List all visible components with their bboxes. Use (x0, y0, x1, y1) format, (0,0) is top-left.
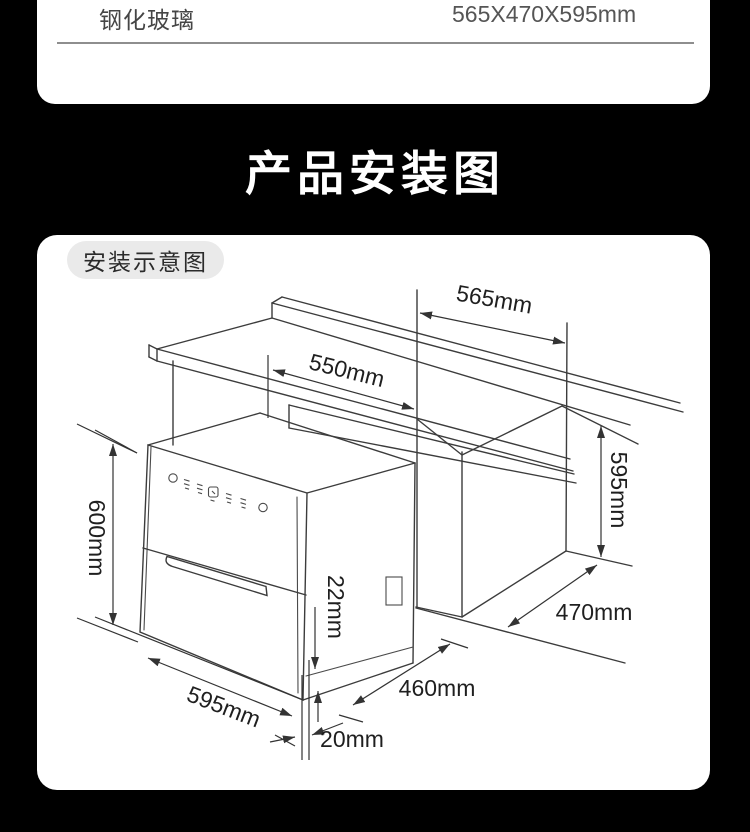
display-tick (211, 491, 216, 501)
dim-counter-width: 565mm (454, 280, 534, 319)
page: { "spec_row": { "material": "钢化玻璃", "siz… (0, 0, 750, 832)
dim-appliance-depth: 460mm (399, 675, 476, 701)
spec-row-divider (57, 42, 694, 44)
side-vent-icon (386, 577, 402, 605)
function-icon (197, 484, 203, 494)
diagram-badge: 安装示意图 (67, 241, 224, 279)
dim-door-overhang: 22mm (323, 575, 349, 639)
start-icon (259, 503, 267, 511)
control-panel (169, 474, 267, 512)
door-handle (166, 557, 267, 596)
function-icon (226, 494, 232, 504)
section-banner: 产品安装图 (0, 104, 750, 235)
dim-niche-height: 595mm (606, 452, 632, 529)
appliance-body (140, 413, 415, 700)
function-icon (184, 480, 190, 490)
spec-size-value: 565X470X595mm (452, 1, 636, 28)
section-title: 产品安装图 (245, 135, 505, 204)
dim-niche-depth: 470mm (556, 599, 633, 625)
installation-card: 安装示意图 (37, 235, 710, 790)
dim-opening-width: 550mm (307, 348, 388, 392)
spec-material-value: 钢化玻璃 (99, 1, 195, 35)
function-icon (241, 499, 247, 509)
spec-card: 钢化玻璃 565X470X595mm (37, 0, 710, 104)
power-icon (169, 474, 177, 482)
dim-appliance-height: 600mm (84, 500, 110, 577)
installation-diagram: 565mm 550mm 595mm 600mm 22mm 470mm 460mm… (37, 235, 710, 790)
dim-side-gap: 20mm (320, 726, 384, 752)
